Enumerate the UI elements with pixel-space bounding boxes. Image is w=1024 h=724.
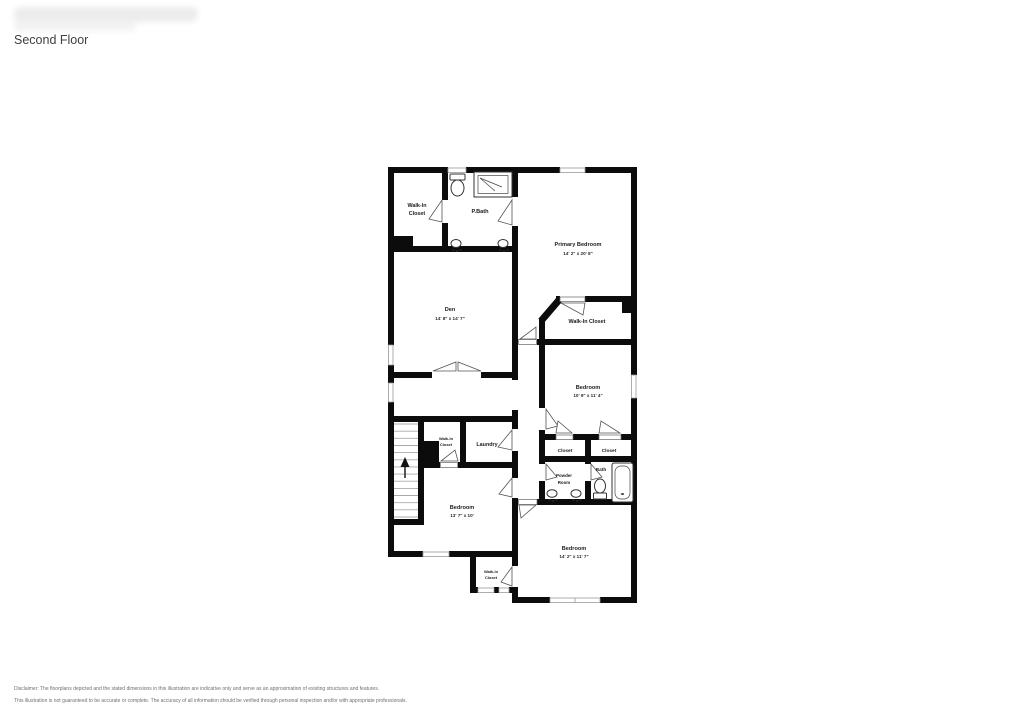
room-label-walk-in-closet-top: Walk-In (408, 203, 427, 209)
bathtub-fixture (612, 463, 633, 502)
toilet-fixture-pbath (450, 174, 465, 196)
room-label-closet-right: Closet (602, 448, 617, 454)
room-dims-primary-bedroom: 14' 2" x 20' 8" (563, 251, 593, 256)
staircase (394, 424, 418, 517)
room-label-walk-in-closet-bottom-2: Closet (485, 575, 498, 580)
room-label-laundry: Laundry (476, 442, 497, 448)
vanity-sink-left (451, 240, 462, 253)
toilet-fixture-bath (594, 479, 607, 499)
angled-wall (541, 300, 559, 321)
vanity-sink-right (498, 240, 509, 253)
room-label-bedroom-mid-right: Bedroom (576, 385, 601, 391)
room-label-powder-room: Powder (556, 473, 572, 478)
floorplan-canvas: Second Floor (0, 0, 1024, 724)
room-label-den: Den (445, 307, 456, 313)
room-dims-den: 14' 8" x 14' 7" (435, 316, 465, 321)
room-dims-bedroom-bottom-right: 14' 2" x 11' 7" (559, 554, 588, 559)
room-label-walk-in-closet-hall: Walk-In (439, 436, 454, 441)
room-label-powder-room-2: Room (558, 480, 571, 485)
blurred-watermark (14, 7, 198, 31)
shower-fixture (474, 172, 512, 197)
room-dims-bedroom-left: 13' 7" x 10' (450, 513, 474, 518)
disclaimer: Disclaimer: The floorplans depicted and … (14, 686, 407, 704)
room-label-bath: Bath (596, 467, 607, 473)
room-label-walk-in-closet-primary: Walk-In Closet (569, 319, 606, 325)
powder-sink-right (571, 490, 582, 502)
room-label-walk-in-closet-bottom: Walk-In (484, 569, 499, 574)
room-label-bedroom-left: Bedroom (450, 505, 475, 511)
floorplan-page: Second Floor (0, 0, 1024, 724)
disclaimer-line-1: Disclaimer: The floorplans depicted and … (14, 686, 379, 692)
page-title: Second Floor (14, 33, 88, 47)
room-dims-bedroom-mid-right: 10' 9" x 11' 4" (573, 393, 602, 398)
room-label-primary-bedroom: Primary Bedroom (555, 242, 602, 248)
room-label-pbath: P.Bath (472, 209, 490, 215)
room-label-closet-left: Closet (558, 448, 573, 454)
disclaimer-line-2: This illustration is not guaranteed to b… (14, 698, 407, 704)
room-label-walk-in-closet-top-2: Closet (409, 211, 426, 217)
room-label-bedroom-bottom-right: Bedroom (562, 546, 587, 552)
powder-sink-left (547, 490, 558, 502)
room-label-walk-in-closet-hall-2: Closet (440, 442, 453, 447)
